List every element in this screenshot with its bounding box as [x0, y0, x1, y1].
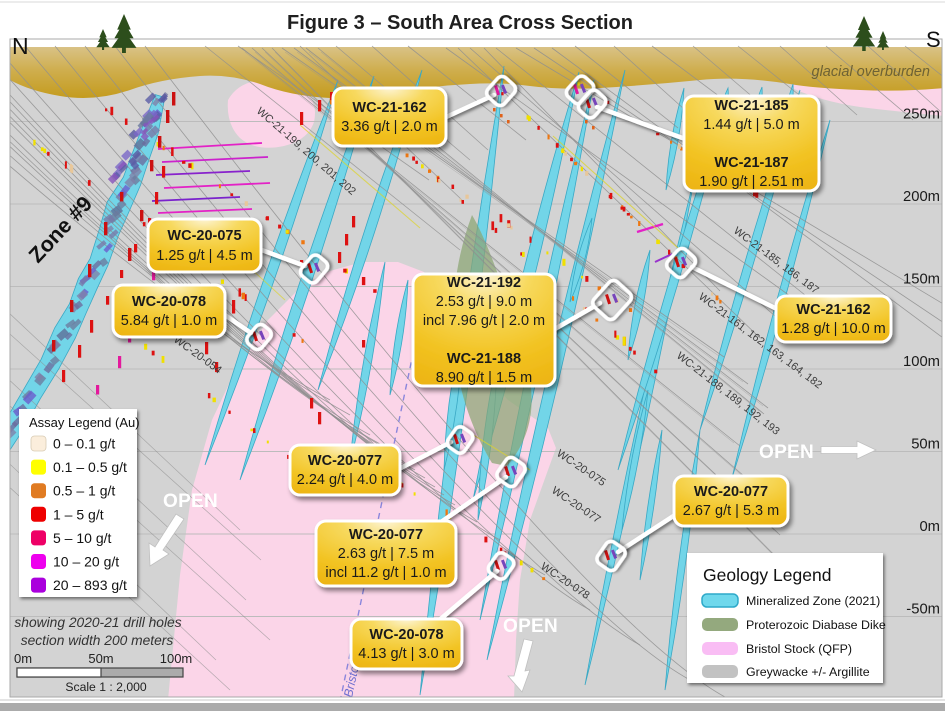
svg-text:0.1 – 0.5 g/t: 0.1 – 0.5 g/t: [53, 459, 127, 475]
svg-text:0 – 0.1 g/t: 0 – 0.1 g/t: [53, 436, 115, 452]
svg-text:N: N: [12, 33, 29, 59]
svg-text:50m: 50m: [88, 651, 113, 666]
svg-text:1.28 g/t | 10.0 m: 1.28 g/t | 10.0 m: [781, 321, 886, 337]
svg-text:Scale 1 : 2,000: Scale 1 : 2,000: [65, 680, 147, 694]
svg-text:OPEN: OPEN: [759, 442, 814, 463]
svg-text:0m: 0m: [14, 651, 32, 666]
svg-text:2.24 g/t | 4.0 m: 2.24 g/t | 4.0 m: [297, 472, 393, 488]
svg-text:0.5 – 1 g/t: 0.5 – 1 g/t: [53, 483, 115, 499]
svg-text:8.90 g/t | 1.5 m: 8.90 g/t | 1.5 m: [436, 370, 532, 386]
svg-text:Mineralized Zone (2021): Mineralized Zone (2021): [746, 594, 880, 608]
svg-text:2.67 g/t | 5.3 m: 2.67 g/t | 5.3 m: [683, 503, 779, 519]
svg-text:incl 7.96 g/t | 2.0 m: incl 7.96 g/t | 2.0 m: [423, 313, 545, 329]
svg-text:50m: 50m: [911, 437, 940, 453]
svg-text:5.84 g/t | 1.0 m: 5.84 g/t | 1.0 m: [121, 313, 217, 329]
svg-text:Assay Legend (Au): Assay Legend (Au): [29, 415, 140, 430]
svg-text:WC-21-188: WC-21-188: [447, 351, 521, 367]
svg-text:glacial overburden: glacial overburden: [812, 64, 931, 80]
svg-text:-50m: -50m: [906, 602, 940, 618]
svg-text:Geology Legend: Geology Legend: [703, 565, 831, 585]
svg-text:WC-21-162: WC-21-162: [796, 302, 870, 318]
svg-text:3.36 g/t | 2.0 m: 3.36 g/t | 2.0 m: [341, 119, 437, 135]
svg-text:1.25 g/t | 4.5 m: 1.25 g/t | 4.5 m: [156, 248, 252, 264]
svg-text:section width 200 meters: section width 200 meters: [21, 633, 174, 648]
svg-text:WC-21-162: WC-21-162: [352, 100, 426, 116]
svg-text:2.63 g/t | 7.5 m: 2.63 g/t | 7.5 m: [338, 546, 434, 562]
svg-text:WC-20-078: WC-20-078: [132, 294, 206, 310]
svg-text:100m: 100m: [903, 354, 940, 370]
svg-text:5 – 10 g/t: 5 – 10 g/t: [53, 530, 111, 546]
svg-text:WC-20-077: WC-20-077: [308, 453, 382, 469]
svg-text:WC-20-077: WC-20-077: [349, 527, 423, 543]
svg-text:S: S: [926, 27, 941, 52]
svg-text:1.44 g/t | 5.0 m: 1.44 g/t | 5.0 m: [703, 117, 799, 133]
svg-text:OPEN: OPEN: [163, 491, 218, 512]
svg-text:2.53 g/t | 9.0 m: 2.53 g/t | 9.0 m: [436, 294, 532, 310]
svg-text:Proterozoic Diabase Dike: Proterozoic Diabase Dike: [746, 618, 886, 632]
svg-text:200m: 200m: [903, 189, 940, 205]
svg-text:100m: 100m: [160, 651, 193, 666]
svg-text:0m: 0m: [919, 519, 940, 535]
svg-text:WC-21-187: WC-21-187: [714, 155, 788, 171]
svg-text:WC-21-185: WC-21-185: [714, 98, 788, 114]
svg-text:WC-20-078: WC-20-078: [369, 627, 443, 643]
svg-text:150m: 150m: [903, 272, 940, 288]
svg-text:10 – 20 g/t: 10 – 20 g/t: [53, 554, 119, 570]
svg-text:1 – 5 g/t: 1 – 5 g/t: [53, 506, 104, 522]
svg-text:showing 2020-21 drill holes: showing 2020-21 drill holes: [14, 615, 181, 630]
svg-text:Greywacke +/- Argillite: Greywacke +/- Argillite: [746, 665, 870, 679]
svg-text:WC-21-192: WC-21-192: [447, 275, 521, 291]
svg-text:WC-20-077: WC-20-077: [694, 484, 768, 500]
svg-text:Figure 3 – South Area Cross Se: Figure 3 – South Area Cross Section: [287, 12, 633, 34]
svg-text:250m: 250m: [903, 107, 940, 123]
svg-text:incl 11.2 g/t | 1.0 m: incl 11.2 g/t | 1.0 m: [325, 565, 446, 581]
svg-text:WC-20-075: WC-20-075: [167, 228, 241, 244]
svg-text:Bristol Stock (QFP): Bristol Stock (QFP): [746, 642, 852, 656]
svg-text:OPEN: OPEN: [503, 616, 558, 637]
svg-text:4.13 g/t | 3.0 m: 4.13 g/t | 3.0 m: [358, 646, 454, 662]
svg-text:20 – 893 g/t: 20 – 893 g/t: [53, 577, 127, 593]
svg-text:1.90 g/t | 2.51 m: 1.90 g/t | 2.51 m: [699, 174, 804, 190]
